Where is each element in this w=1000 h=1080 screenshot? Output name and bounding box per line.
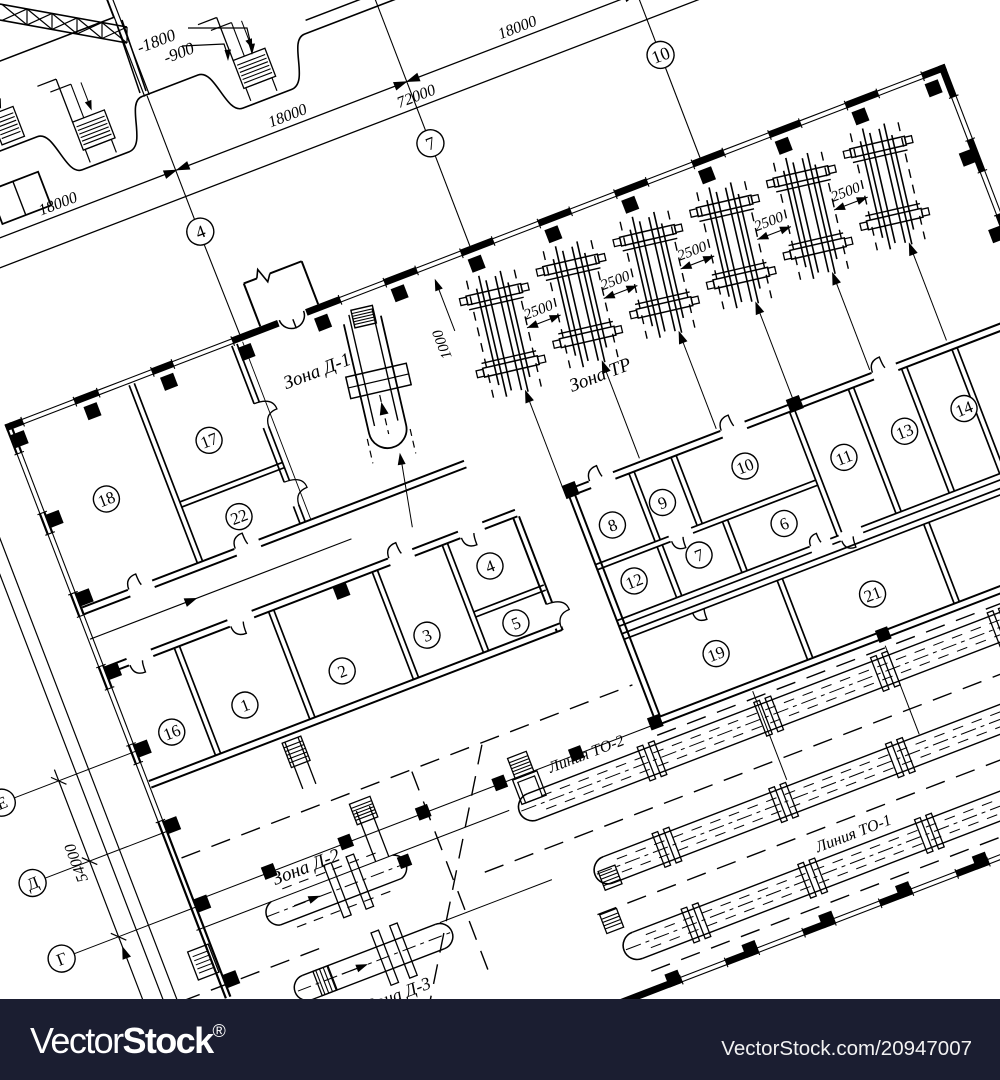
svg-text:VectorStock®: VectorStock®	[30, 1020, 226, 1061]
svg-text:VectorStock.com/20947007: VectorStock.com/20947007	[721, 1037, 972, 1060]
